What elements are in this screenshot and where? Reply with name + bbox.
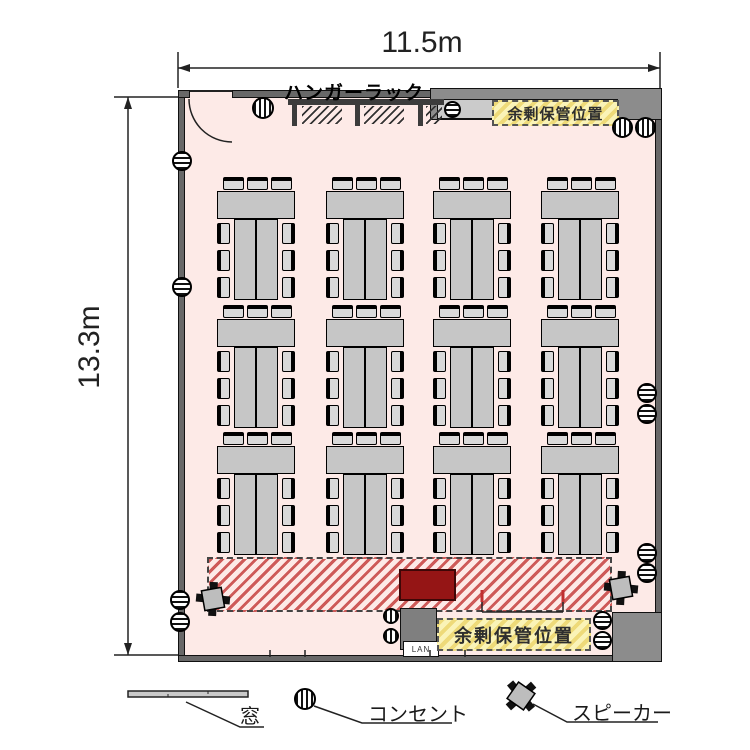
- chair: [595, 305, 616, 318]
- chair: [380, 305, 401, 318]
- table-column: [450, 474, 472, 555]
- table-column: [580, 347, 602, 428]
- chair: [326, 478, 339, 499]
- chair: [380, 432, 401, 445]
- chair: [463, 432, 484, 445]
- chair: [541, 223, 554, 244]
- chair: [595, 177, 616, 190]
- wall-top-door-stub: [178, 90, 190, 98]
- chair: [217, 250, 230, 271]
- chair: [606, 277, 619, 298]
- chair: [541, 405, 554, 426]
- hanger-rack-label: ハンガーラック: [284, 78, 424, 105]
- stage-dark-block: [399, 569, 456, 601]
- outlet-icon: [637, 404, 657, 424]
- outlet-icon: [593, 631, 612, 650]
- chair: [326, 351, 339, 372]
- table-column: [343, 347, 365, 428]
- outlet-icon: [593, 611, 612, 630]
- table-header: [433, 446, 511, 474]
- chair: [541, 505, 554, 526]
- table-column: [343, 474, 365, 555]
- chair: [541, 378, 554, 399]
- legend-window-label: 窓: [240, 700, 260, 729]
- dimension-height-label: 13.3m: [73, 297, 107, 397]
- chair: [433, 351, 446, 372]
- chair: [282, 378, 295, 399]
- chair: [223, 305, 244, 318]
- chair: [571, 432, 592, 445]
- storage-top-label: 余剰保管位置: [507, 103, 603, 124]
- chair: [217, 532, 230, 553]
- table-column: [450, 347, 472, 428]
- storage-zone-top: 余剰保管位置: [492, 100, 619, 126]
- table-column: [558, 347, 580, 428]
- table-column: [365, 474, 387, 555]
- table-header: [217, 319, 295, 347]
- table-header: [433, 319, 511, 347]
- table-header: [326, 319, 404, 347]
- chair: [247, 432, 268, 445]
- chair: [223, 432, 244, 445]
- legend-outlet-label: コンセント: [368, 698, 468, 727]
- chair: [439, 432, 460, 445]
- chair: [541, 351, 554, 372]
- chair: [217, 405, 230, 426]
- chair: [326, 505, 339, 526]
- chair: [487, 305, 508, 318]
- chair: [391, 505, 404, 526]
- table-column: [234, 474, 256, 555]
- chair: [356, 432, 377, 445]
- chair: [439, 177, 460, 190]
- chair: [391, 478, 404, 499]
- chair: [606, 405, 619, 426]
- chair: [391, 405, 404, 426]
- chair: [606, 250, 619, 271]
- chair: [498, 223, 511, 244]
- outlet-icon: [637, 543, 657, 563]
- storage-bottom-label: 余剰保管位置: [454, 622, 574, 648]
- chair: [571, 305, 592, 318]
- table-column: [580, 474, 602, 555]
- chair: [217, 351, 230, 372]
- table-column: [365, 347, 387, 428]
- outlet-icon: [637, 383, 657, 403]
- chair: [433, 405, 446, 426]
- chair: [541, 250, 554, 271]
- chair: [332, 432, 353, 445]
- chair: [356, 305, 377, 318]
- chair: [439, 305, 460, 318]
- chair: [282, 250, 295, 271]
- chair: [498, 250, 511, 271]
- chair: [271, 305, 292, 318]
- table-column: [256, 474, 278, 555]
- chair: [541, 532, 554, 553]
- outlet-icon: [383, 628, 399, 644]
- table-header: [541, 319, 619, 347]
- chair: [271, 177, 292, 190]
- chair: [606, 223, 619, 244]
- table-column: [558, 219, 580, 300]
- outlet-icon: [383, 608, 399, 624]
- outlet-icon: [294, 688, 316, 710]
- chair: [606, 378, 619, 399]
- chair: [217, 277, 230, 298]
- chair: [282, 478, 295, 499]
- storage-zone-bottom: 余剰保管位置: [437, 618, 591, 651]
- chair: [571, 177, 592, 190]
- chair: [606, 351, 619, 372]
- chair: [606, 478, 619, 499]
- chair: [326, 378, 339, 399]
- chair: [487, 177, 508, 190]
- outlet-icon: [635, 117, 656, 138]
- chair: [606, 505, 619, 526]
- chair: [498, 351, 511, 372]
- chair: [282, 223, 295, 244]
- hangers-hatch: [302, 106, 342, 124]
- chair: [498, 505, 511, 526]
- chair: [391, 223, 404, 244]
- chair: [606, 532, 619, 553]
- chair: [541, 478, 554, 499]
- table-column: [450, 219, 472, 300]
- table-header: [326, 191, 404, 219]
- speaker-icon: [190, 576, 236, 622]
- chair: [217, 223, 230, 244]
- table-header: [217, 191, 295, 219]
- chair: [463, 305, 484, 318]
- chair: [498, 478, 511, 499]
- floorplan-canvas: LAN 余剰保管位置 余剰保管位置: [0, 0, 750, 750]
- table-column: [256, 347, 278, 428]
- chair: [433, 532, 446, 553]
- chair: [498, 405, 511, 426]
- chair: [217, 478, 230, 499]
- chair: [282, 277, 295, 298]
- chair: [326, 405, 339, 426]
- chair: [247, 177, 268, 190]
- outlet-icon: [444, 101, 461, 118]
- chair: [547, 305, 568, 318]
- chair: [391, 250, 404, 271]
- window-icon: [128, 691, 248, 697]
- chair: [391, 532, 404, 553]
- chair: [433, 478, 446, 499]
- table-column: [472, 219, 494, 300]
- chair: [332, 177, 353, 190]
- chair: [380, 177, 401, 190]
- chair: [433, 277, 446, 298]
- table-column: [365, 219, 387, 300]
- chair: [217, 378, 230, 399]
- table-column: [234, 347, 256, 428]
- chair: [487, 432, 508, 445]
- chair: [391, 277, 404, 298]
- outlet-icon: [612, 117, 633, 138]
- table-column: [472, 347, 494, 428]
- lan-port-box: LAN: [403, 641, 439, 657]
- outlet-icon: [172, 151, 192, 171]
- legend-speaker-label: スピーカー: [572, 697, 672, 726]
- chair: [391, 351, 404, 372]
- table-column: [472, 474, 494, 555]
- dimension-width-label: 11.5m: [352, 26, 492, 60]
- speaker-icon: [598, 565, 644, 611]
- table-header: [326, 446, 404, 474]
- wall-left: [178, 90, 185, 662]
- chair: [433, 378, 446, 399]
- chair: [332, 305, 353, 318]
- outlet-icon: [172, 277, 192, 297]
- chair: [433, 505, 446, 526]
- chair: [541, 277, 554, 298]
- chair: [326, 532, 339, 553]
- chair: [433, 250, 446, 271]
- chair: [498, 532, 511, 553]
- table-header: [541, 446, 619, 474]
- chair: [326, 250, 339, 271]
- outlet-icon: [170, 590, 190, 610]
- table-header: [433, 191, 511, 219]
- chair: [271, 432, 292, 445]
- hangers-hatch: [364, 106, 404, 124]
- outlet-icon: [170, 612, 190, 632]
- table-header: [541, 191, 619, 219]
- table-column: [234, 219, 256, 300]
- speaker-icon: [498, 673, 544, 719]
- hangers-hatch: [426, 106, 442, 124]
- chair: [433, 223, 446, 244]
- chair: [282, 532, 295, 553]
- chair: [326, 223, 339, 244]
- table-header: [217, 446, 295, 474]
- chair: [247, 305, 268, 318]
- chair: [356, 177, 377, 190]
- chair: [498, 378, 511, 399]
- table-column: [580, 219, 602, 300]
- chair: [217, 505, 230, 526]
- chair: [547, 177, 568, 190]
- chair: [547, 432, 568, 445]
- outlet-icon: [252, 97, 274, 119]
- chair: [595, 432, 616, 445]
- table-column: [558, 474, 580, 555]
- corner-column-bottom-right: [612, 612, 662, 662]
- table-column: [256, 219, 278, 300]
- chair: [282, 405, 295, 426]
- chair: [282, 505, 295, 526]
- table-column: [343, 219, 365, 300]
- chair: [498, 277, 511, 298]
- chair: [223, 177, 244, 190]
- chair: [463, 177, 484, 190]
- lan-label: LAN: [412, 645, 431, 654]
- chair: [326, 277, 339, 298]
- chair: [391, 378, 404, 399]
- chair: [282, 351, 295, 372]
